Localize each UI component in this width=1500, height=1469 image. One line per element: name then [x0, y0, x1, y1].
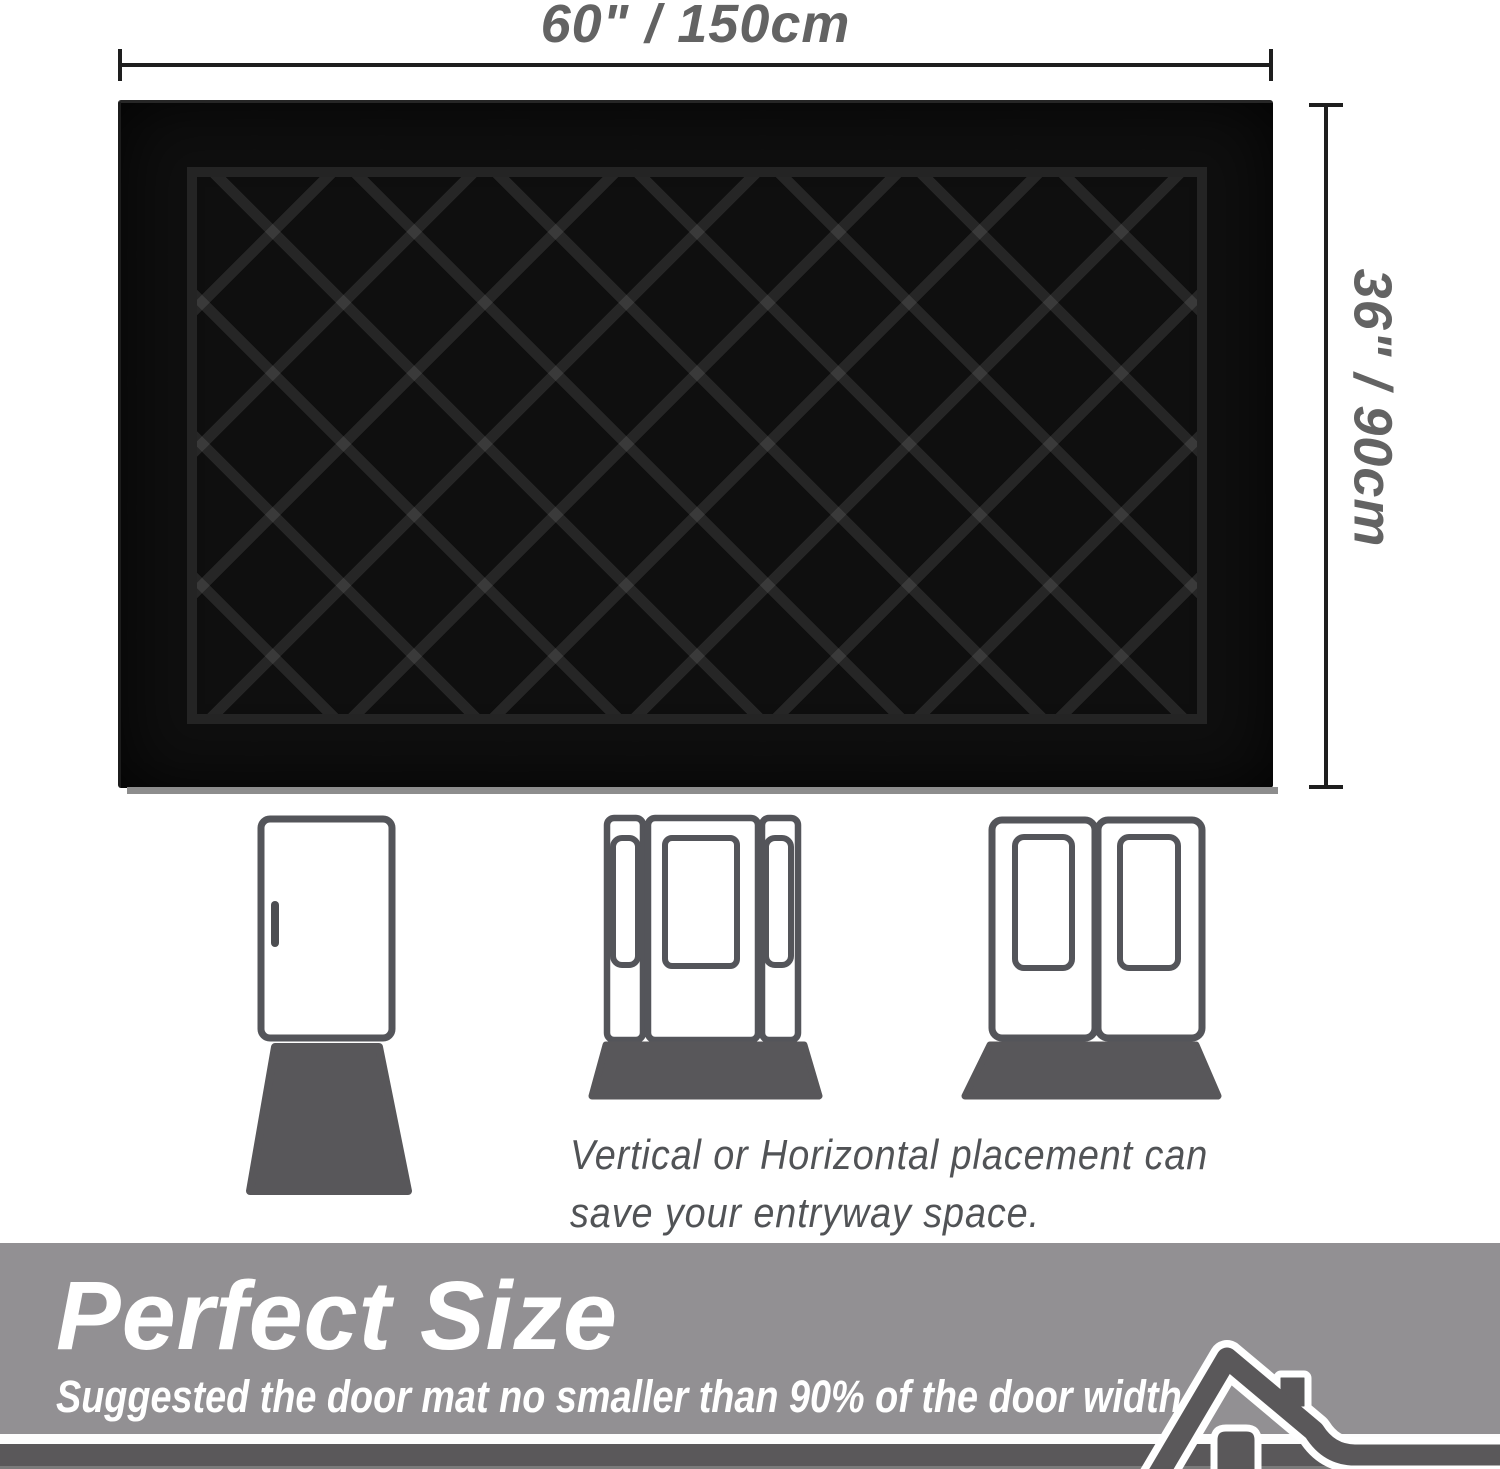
caption-line-1: Vertical or Horizontal placement can: [570, 1126, 1208, 1184]
door-handle-icon: [271, 901, 279, 947]
vertical-mat-icon: [250, 1047, 408, 1191]
mat-diamond-pattern: [197, 177, 1197, 714]
horizontal-mat-icon: [592, 1045, 819, 1096]
banner-title: Perfect Size: [56, 1266, 618, 1366]
door-with-sidelights-icon: [588, 813, 823, 1105]
house-door-icon: [1214, 1428, 1258, 1469]
house-roof-icon: [1100, 1320, 1500, 1469]
mat-bottom-edge: [127, 787, 1278, 794]
banner-subtitle: Suggested the door mat no smaller than 9…: [56, 1372, 1192, 1422]
placement-caption: Vertical or Horizontal placement can sav…: [570, 1126, 1208, 1242]
width-dimension-line: [118, 63, 1273, 67]
horizontal-mat-icon: [965, 1045, 1218, 1096]
single-door-icon: [245, 813, 415, 1205]
caption-line-2: save your entryway space.: [570, 1184, 1208, 1242]
double-door-icon: [958, 813, 1226, 1105]
width-dimension-label: 60" / 150cm: [118, 0, 1273, 54]
door-mat-photo: [118, 100, 1273, 788]
